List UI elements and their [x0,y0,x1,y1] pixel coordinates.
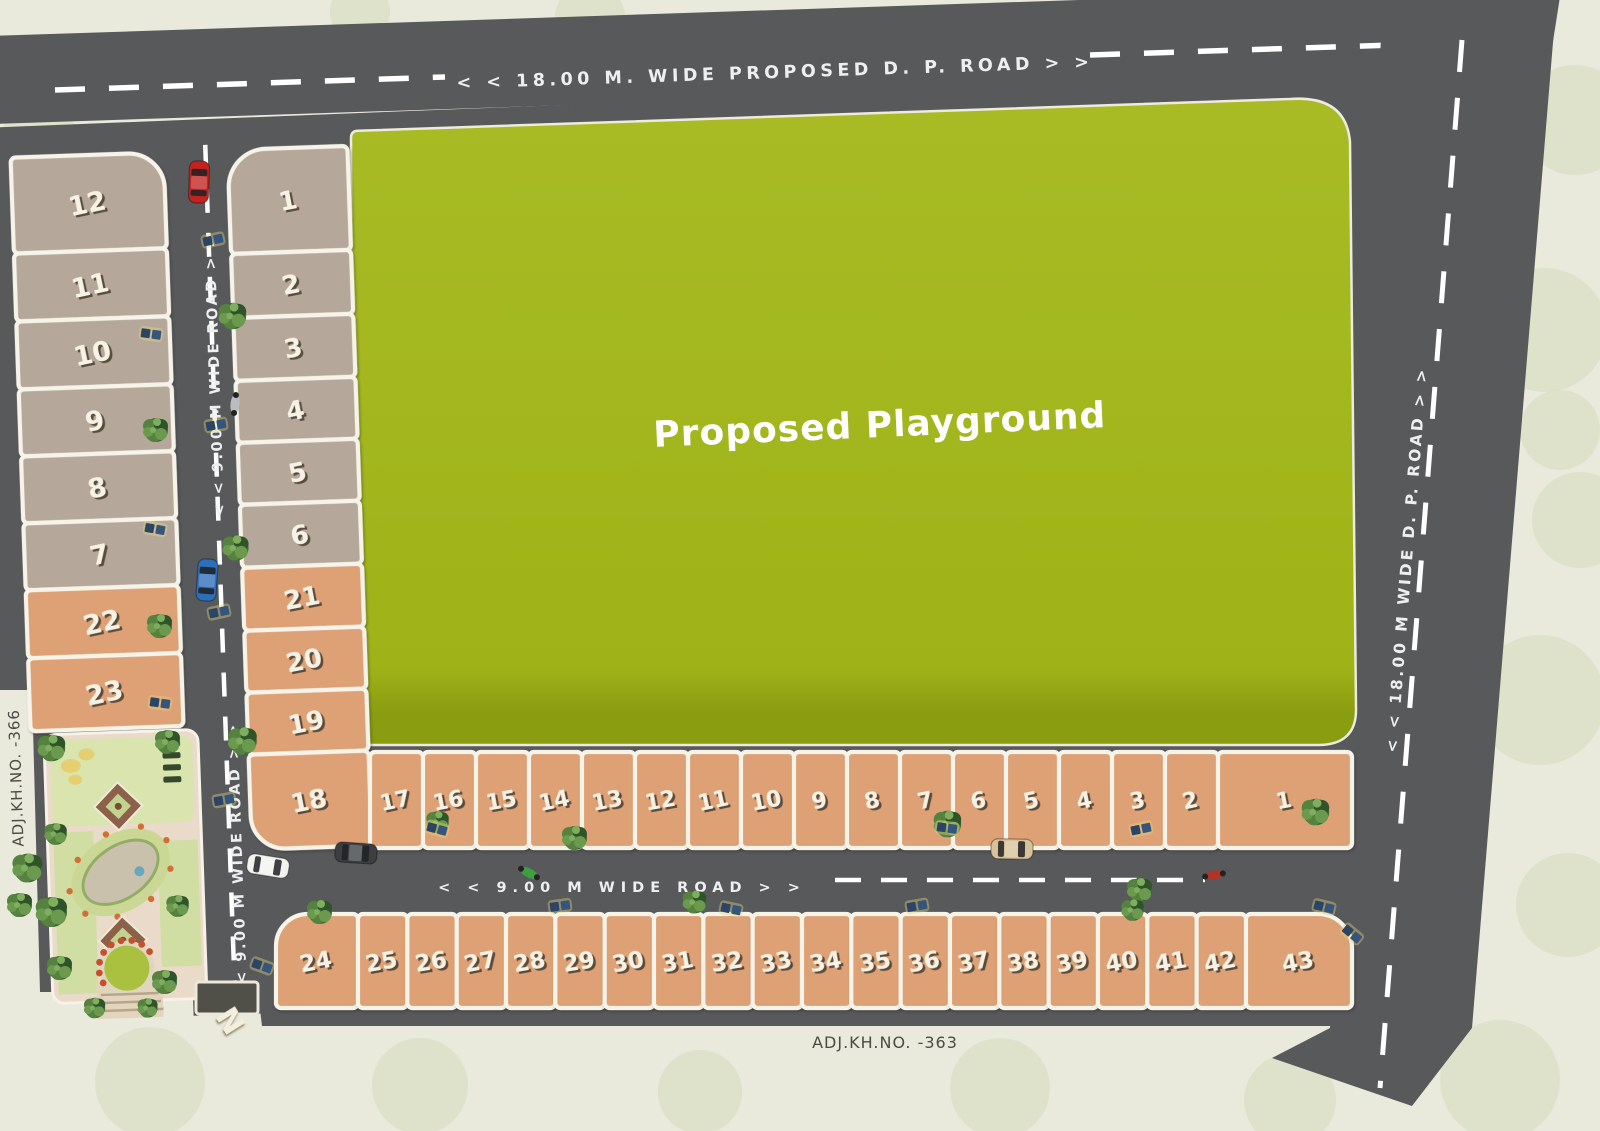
plot-number: 41 [1153,947,1189,978]
plot-number: 37 [955,947,991,978]
plot-number: 38 [1005,947,1041,978]
garden-circle-lawn [101,942,153,994]
plot-number: 26 [413,947,449,978]
garden-park [44,729,208,1020]
car-icon [188,161,209,204]
plot-number: 31 [659,947,695,978]
plot-number: 35 [857,947,893,978]
plot-number: 15 [484,787,519,817]
car-icon [991,839,1033,860]
plot-number: 43 [1280,947,1316,978]
plot-number: 25 [363,947,399,978]
foliage-blob [372,1038,468,1131]
site-plan-svg: Proposed Playground < < 18.00 M. WIDE PR… [0,0,1600,1131]
site-plan: Proposed Playground < < 18.00 M. WIDE PR… [0,0,1600,1131]
foliage-blob [1520,390,1600,470]
plot-number: 12 [643,787,678,817]
plot-number: 34 [807,947,843,978]
garden-hedge [163,776,181,783]
foliage-blob [658,1050,742,1131]
plot-number: 40 [1103,947,1139,978]
plot-number: 32 [709,947,745,978]
middle-road-label: < < 9.00 M WIDE ROAD > > [438,880,806,896]
garden-hedge [163,764,181,771]
plot-number: 29 [561,947,597,978]
plot-number: 28 [511,947,547,978]
car-icon [196,558,219,601]
car-icon [334,842,377,865]
adj-kh-no-bottom: ADJ.KH.NO. -363 [812,1033,958,1052]
